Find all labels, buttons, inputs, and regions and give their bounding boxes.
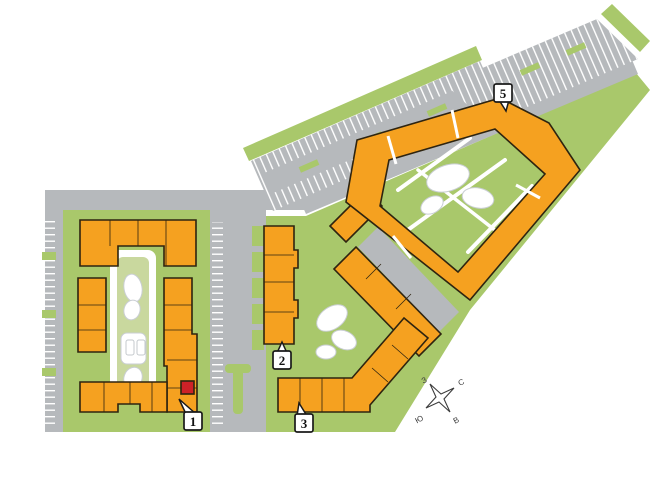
svg-text:1: 1 xyxy=(190,414,197,429)
svg-text:3: 3 xyxy=(301,416,308,431)
compass-label-north: С xyxy=(457,377,467,388)
courtyard-building1 xyxy=(110,250,156,400)
site-map: С В Ю З 1 2 3 5 xyxy=(0,0,652,478)
building-2[interactable] xyxy=(264,226,298,344)
compass-label-east: В xyxy=(452,415,461,425)
site-map-canvas: С В Ю З 1 2 3 5 xyxy=(0,0,652,478)
compass-label-south: Ю xyxy=(414,414,425,426)
svg-text:2: 2 xyxy=(279,353,286,368)
parking-left xyxy=(43,216,55,424)
svg-text:5: 5 xyxy=(500,86,507,101)
compass-star xyxy=(426,384,454,412)
selected-unit[interactable] xyxy=(181,381,194,394)
